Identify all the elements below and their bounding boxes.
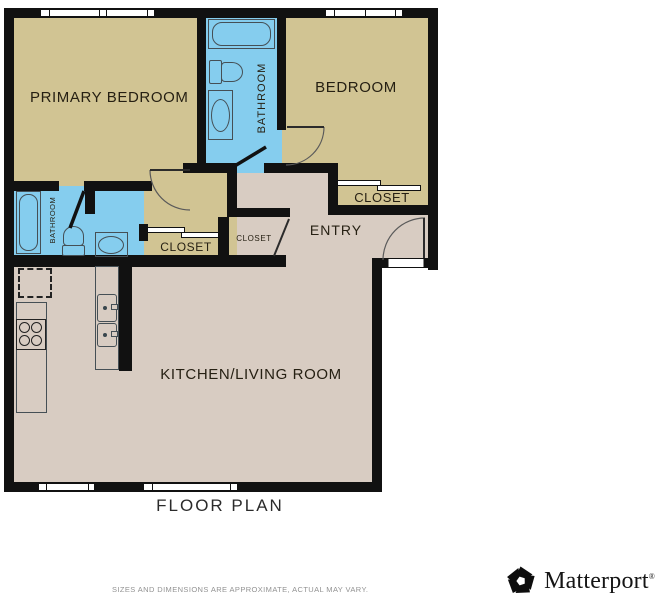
stove-burner — [19, 322, 30, 333]
window-top-1 — [40, 9, 155, 17]
label-bathroom-left: BATHROOM — [49, 190, 57, 250]
sink-basin-fixture — [98, 236, 124, 254]
label-bathroom-top: BATHROOM — [256, 53, 268, 143]
window-mullion — [106, 10, 107, 16]
window-mullion — [230, 484, 231, 490]
sink-drain — [103, 333, 107, 337]
sink-basin-fixture — [211, 99, 230, 132]
label-closet-entry: CLOSET — [224, 235, 284, 244]
matterport-logo-icon — [505, 565, 537, 597]
stove-burner — [31, 322, 42, 333]
wall-bathroom-top-right — [277, 18, 286, 130]
window-mullion — [334, 10, 335, 16]
window-mullion — [395, 10, 396, 16]
bathtub-fixture-inner — [19, 194, 38, 251]
sink-drain — [103, 306, 107, 310]
wall-mid-band-a — [183, 163, 232, 173]
label-primary-bedroom: PRIMARY BEDROOM — [30, 90, 180, 107]
sink-faucet — [111, 331, 118, 337]
floor-plan: PRIMARY BEDROOM BATHROOM BEDROOM CLOSET … — [0, 0, 665, 600]
window-bottom-1 — [38, 483, 95, 491]
window-mullion — [49, 10, 50, 16]
kitchen-sink-fixture — [97, 323, 117, 347]
brand-wordmark: Matterport® — [544, 568, 655, 595]
refrigerator-fixture — [18, 268, 52, 298]
wall-closet-entry-top — [232, 208, 290, 217]
wall-entry-bottom-right — [424, 258, 438, 268]
wall-left — [4, 8, 14, 492]
window-bottom-2 — [143, 483, 238, 491]
sink-faucet — [111, 304, 118, 310]
wall-entry-bottom-left — [372, 258, 388, 268]
window-mullion — [152, 484, 153, 490]
toilet-bowl-fixture — [63, 226, 84, 246]
wall-kitchen-right — [372, 258, 382, 492]
label-closet-hall: CLOSET — [146, 241, 226, 254]
brand-lockup: Matterport® — [505, 565, 655, 597]
sliding-door-hall-closet — [147, 227, 185, 233]
toilet-fixture — [62, 245, 85, 256]
wall-vanity-stub — [85, 186, 95, 214]
stove-burner — [19, 335, 30, 346]
label-bedroom: BEDROOM — [296, 80, 416, 97]
sliding-door-hall-closet — [181, 232, 219, 238]
wall-kitchen-stub — [119, 264, 132, 371]
label-closet-bedroom: CLOSET — [342, 191, 422, 205]
sliding-door-bedroom-closet — [337, 180, 381, 186]
window-mullion — [147, 10, 148, 16]
window-mullion — [365, 10, 366, 16]
toilet-bowl-fixture — [221, 62, 243, 82]
bathtub-fixture-inner — [212, 22, 271, 46]
stove-burner — [31, 335, 42, 346]
wall-mid-band-b — [264, 163, 338, 173]
window-mullion — [99, 10, 100, 16]
window-mullion — [46, 484, 47, 490]
wall-bathroom-top-left — [197, 18, 206, 168]
wall-bedroom-closet-bottom — [333, 205, 433, 215]
wall-mid-bottom — [4, 255, 286, 267]
label-entry: ENTRY — [296, 223, 376, 238]
window-top-2 — [325, 9, 403, 17]
plan-title: FLOOR PLAN — [120, 496, 320, 516]
kitchen-sink-fixture — [97, 294, 117, 322]
disclaimer-text: SIZES AND DIMENSIONS ARE APPROXIMATE, AC… — [112, 585, 368, 594]
registered-mark: ® — [649, 572, 655, 581]
stove-fixture — [16, 319, 46, 350]
window-mullion — [88, 484, 89, 490]
wall-right — [428, 8, 438, 270]
label-kitchen-living: KITCHEN/LIVING ROOM — [151, 367, 351, 384]
